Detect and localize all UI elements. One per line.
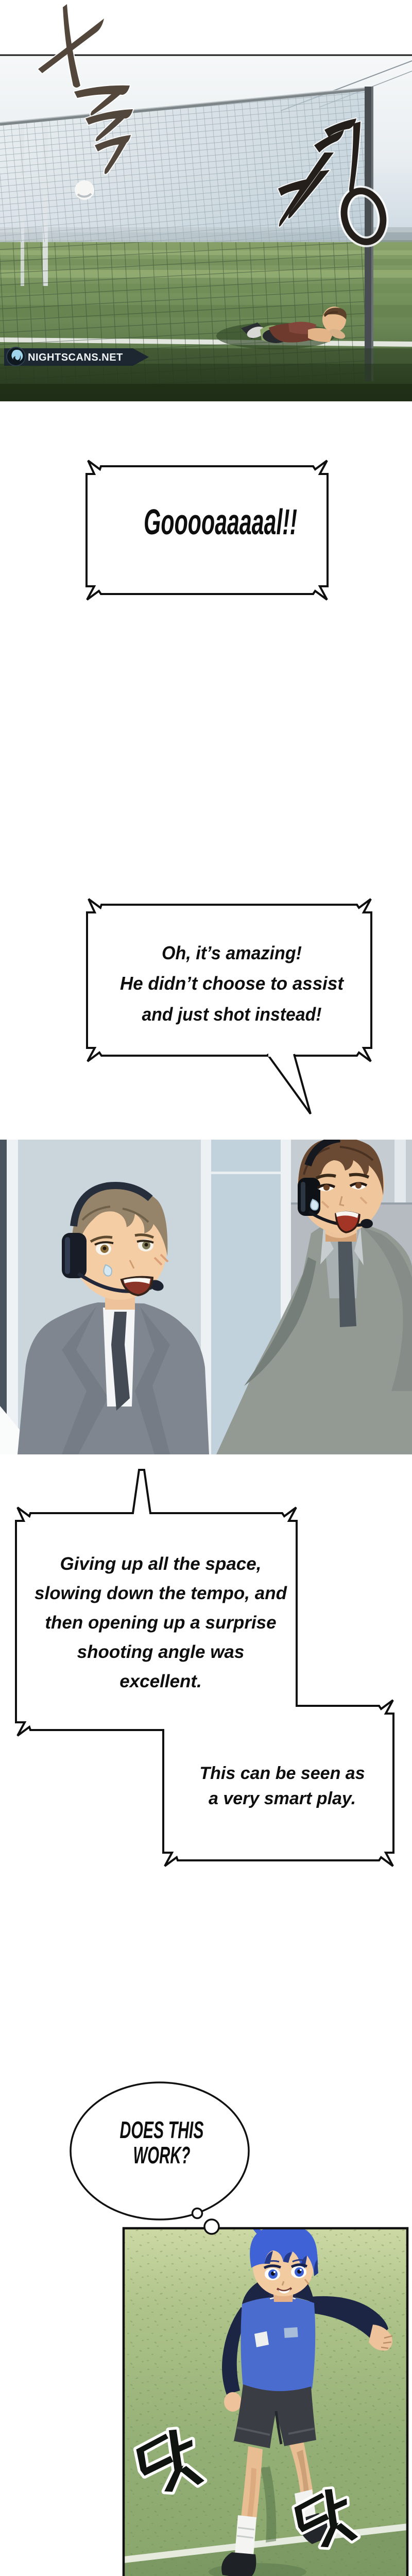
svg-text:excellent.: excellent. [119,1671,202,1691]
svg-text:a very smart play.: a very smart play. [209,1789,356,1808]
svg-text:He didn’t choose to assist: He didn’t choose to assist [120,973,345,994]
svg-text:DOES THIS: DOES THIS [120,2116,204,2143]
svg-text:NIGHTSCANS.NET: NIGHTSCANS.NET [28,352,123,363]
svg-text:This can be seen as: This can be seen as [199,1764,365,1783]
svg-text:slowing down the tempo, and: slowing down the tempo, and [35,1583,287,1603]
svg-text:then opening up a surprise: then opening up a surprise [45,1613,276,1633]
svg-text:WORK?: WORK? [133,2142,191,2168]
svg-text:Oh, it’s amazing!: Oh, it’s amazing! [162,942,302,963]
svg-text:and just shot instead!: and just shot instead! [142,1004,322,1025]
svg-text:Giving up all the space,: Giving up all the space, [60,1554,262,1574]
svg-text:shooting angle was: shooting angle was [77,1642,245,1662]
svg-text:Gooooaaaaal!!: Gooooaaaaal!! [144,502,297,542]
